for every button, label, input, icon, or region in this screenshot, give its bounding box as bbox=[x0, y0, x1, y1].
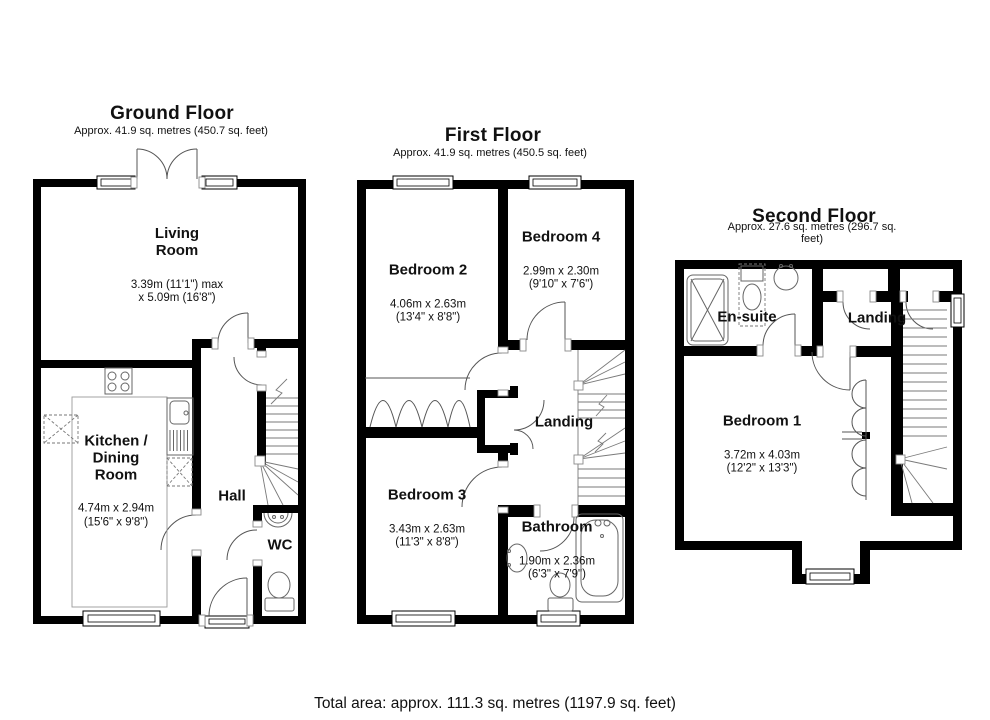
floorplan-page: Ground Floor Approx. 41.9 sq. metres (45… bbox=[0, 0, 990, 720]
first-door-gaps bbox=[526, 339, 566, 351]
first-windows bbox=[392, 176, 581, 626]
total-area-text: Total area: approx. 111.3 sq. metres (11… bbox=[0, 695, 990, 713]
second-walls bbox=[675, 260, 962, 584]
first-stairs bbox=[574, 350, 625, 505]
second-ensuite-fixtures bbox=[687, 264, 798, 345]
second-windows bbox=[806, 294, 964, 584]
basin-icon bbox=[774, 266, 798, 290]
kitchen-counter bbox=[72, 397, 167, 607]
toilet-icon bbox=[548, 598, 573, 611]
ground-windows bbox=[83, 176, 249, 628]
ground-kitchen-fixtures bbox=[44, 368, 193, 607]
toilet-icon bbox=[265, 598, 294, 611]
basin-icon bbox=[507, 544, 527, 572]
first-bathroom-fixtures bbox=[507, 514, 623, 611]
front-door-threshold bbox=[205, 616, 249, 628]
ground-walls bbox=[33, 179, 306, 624]
first-floor-plan bbox=[357, 176, 634, 626]
second-stairs bbox=[896, 310, 947, 503]
second-doors bbox=[757, 291, 939, 500]
floorplan-drawing bbox=[0, 0, 990, 720]
ground-wc-fixtures bbox=[264, 513, 294, 611]
second-floor-plan bbox=[675, 260, 964, 584]
bifold-doors-icon bbox=[370, 401, 470, 428]
ground-floor-plan bbox=[33, 149, 306, 628]
